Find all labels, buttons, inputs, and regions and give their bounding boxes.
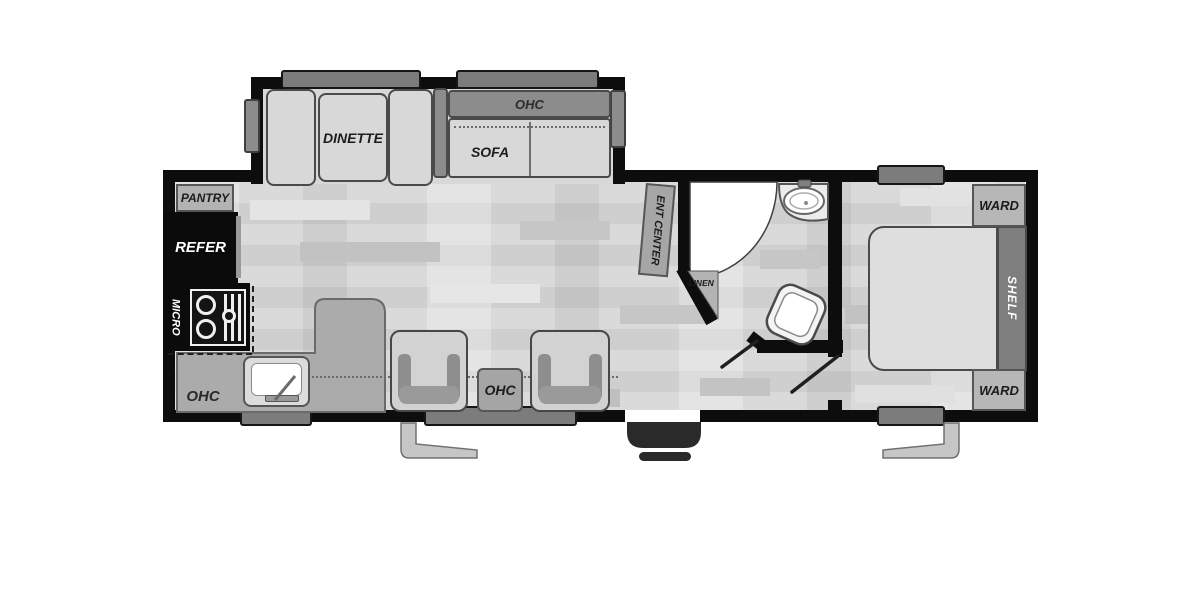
- sofa-ohc-cabinet: OHC: [448, 90, 611, 118]
- counter-dash-right: [252, 286, 254, 352]
- burner-icon: [196, 319, 216, 339]
- sofa: SOFA: [448, 118, 611, 178]
- dinette-table: DINETTE: [318, 93, 388, 182]
- kitchen-sink: [243, 356, 310, 407]
- ward-bottom-label: WARD: [979, 384, 1019, 397]
- ward-top-label: WARD: [979, 199, 1019, 212]
- faucet-icon: [798, 180, 811, 187]
- sofa-ohc-label: OHC: [515, 98, 544, 111]
- stabilizer-jack-right: [883, 423, 959, 458]
- linen-label: LINEN: [688, 279, 714, 288]
- theater-seat-right: [530, 330, 610, 412]
- bed-shelf: SHELF: [997, 226, 1027, 371]
- kitchen-ohc-label: OHC: [186, 389, 219, 404]
- grate-bar-icon: [238, 294, 241, 341]
- refrigerator: REFER: [163, 212, 238, 283]
- shelf-label: SHELF: [1006, 276, 1018, 320]
- entry-steps: [627, 422, 701, 448]
- pantry-label: PANTRY: [181, 192, 229, 204]
- seat-cushion: [539, 386, 601, 404]
- bedroom-door-line: [792, 356, 838, 392]
- stabilizer-jack-left: [401, 423, 477, 458]
- burner-icon: [196, 295, 216, 315]
- refrigerator-door: [236, 216, 241, 278]
- counter-dash-bottom: [168, 353, 252, 355]
- wardrobe-top: WARD: [972, 184, 1026, 227]
- sofa-armrest: [433, 88, 448, 178]
- dinette-bench-right: [388, 89, 433, 186]
- pantry-cabinet: PANTRY: [176, 184, 234, 212]
- dinette-bench-left: [266, 89, 316, 186]
- bed: [868, 226, 998, 371]
- seat-cushion: [399, 386, 459, 404]
- microwave-stove-unit: MICRO: [165, 283, 250, 351]
- burner-icon: [222, 309, 236, 323]
- theater-seat-left: [390, 330, 468, 412]
- floorplan-canvas: DINETTE OHC SOFA PANTRY REFER MICRO: [0, 0, 1200, 600]
- stove-icon: [190, 289, 246, 346]
- wardrobe-bottom: WARD: [972, 369, 1026, 411]
- dinette-label: DINETTE: [323, 131, 383, 145]
- micro-label-wrap: MICRO: [167, 287, 183, 347]
- toilet: [763, 281, 830, 349]
- entry-step-lower: [639, 452, 691, 461]
- bathroom-door-line: [722, 341, 757, 367]
- faucet-lever-icon: [245, 358, 312, 409]
- living-ohc-label: OHC: [484, 383, 515, 397]
- sofa-label: SOFA: [471, 145, 509, 159]
- ent-center-label: ENT CENTER: [648, 195, 665, 266]
- sofa-label-wrap: SOFA: [450, 132, 530, 172]
- kitchen-ohc-label-wrap: OHC: [180, 385, 226, 407]
- micro-label: MICRO: [170, 299, 181, 336]
- sink-drain-icon: [804, 201, 808, 205]
- end-table-ohc: OHC: [477, 368, 523, 412]
- refer-label: REFER: [175, 240, 226, 255]
- linen-label-wrap: LINEN: [686, 277, 716, 289]
- bathroom-door-swing: [690, 182, 777, 278]
